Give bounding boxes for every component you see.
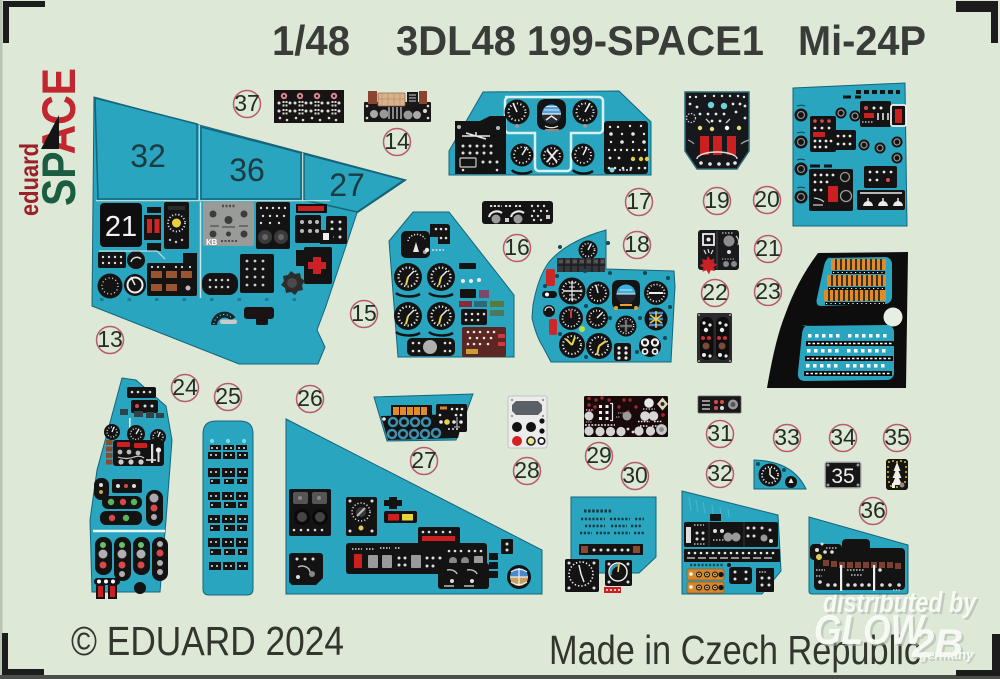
svg-text:30: 30 [622, 462, 648, 488]
svg-text:14: 14 [384, 128, 410, 154]
svg-text:24: 24 [172, 374, 198, 400]
svg-text:Mi-24P: Mi-24P [798, 17, 926, 64]
svg-text:21: 21 [105, 211, 137, 243]
svg-text:19: 19 [704, 187, 730, 213]
svg-text:22: 22 [702, 279, 728, 305]
svg-text:27: 27 [329, 167, 365, 203]
svg-text:27: 27 [411, 447, 437, 473]
svg-text:20: 20 [754, 186, 780, 212]
svg-text:germany: germany [918, 647, 974, 662]
svg-text:15: 15 [351, 300, 377, 326]
svg-text:© EDUARD 2024: © EDUARD 2024 [71, 618, 344, 664]
svg-text:36: 36 [229, 152, 265, 188]
svg-text:37: 37 [234, 90, 260, 116]
svg-text:3DL48 199-SPACE1: 3DL48 199-SPACE1 [396, 17, 764, 64]
svg-text:17: 17 [626, 188, 652, 214]
svg-text:35: 35 [831, 465, 854, 488]
svg-text:1/48: 1/48 [272, 17, 350, 64]
svg-text:26: 26 [297, 385, 323, 411]
svg-text:33: 33 [774, 424, 800, 450]
svg-text:КВ: КВ [206, 237, 217, 247]
svg-text:25: 25 [215, 383, 241, 409]
svg-text:18: 18 [624, 231, 650, 257]
svg-text:34: 34 [830, 424, 856, 450]
svg-text:32: 32 [130, 138, 166, 174]
svg-text:29: 29 [586, 442, 612, 468]
svg-text:32: 32 [707, 460, 733, 486]
svg-text:13: 13 [97, 326, 123, 352]
svg-text:36: 36 [860, 497, 886, 523]
svg-text:16: 16 [504, 234, 530, 260]
svg-text:31: 31 [707, 420, 733, 446]
svg-text:23: 23 [755, 278, 781, 304]
svg-text:GLOW: GLOW [814, 606, 927, 653]
svg-text:21: 21 [755, 235, 781, 261]
svg-text:35: 35 [884, 424, 910, 450]
svg-text:28: 28 [514, 457, 540, 483]
